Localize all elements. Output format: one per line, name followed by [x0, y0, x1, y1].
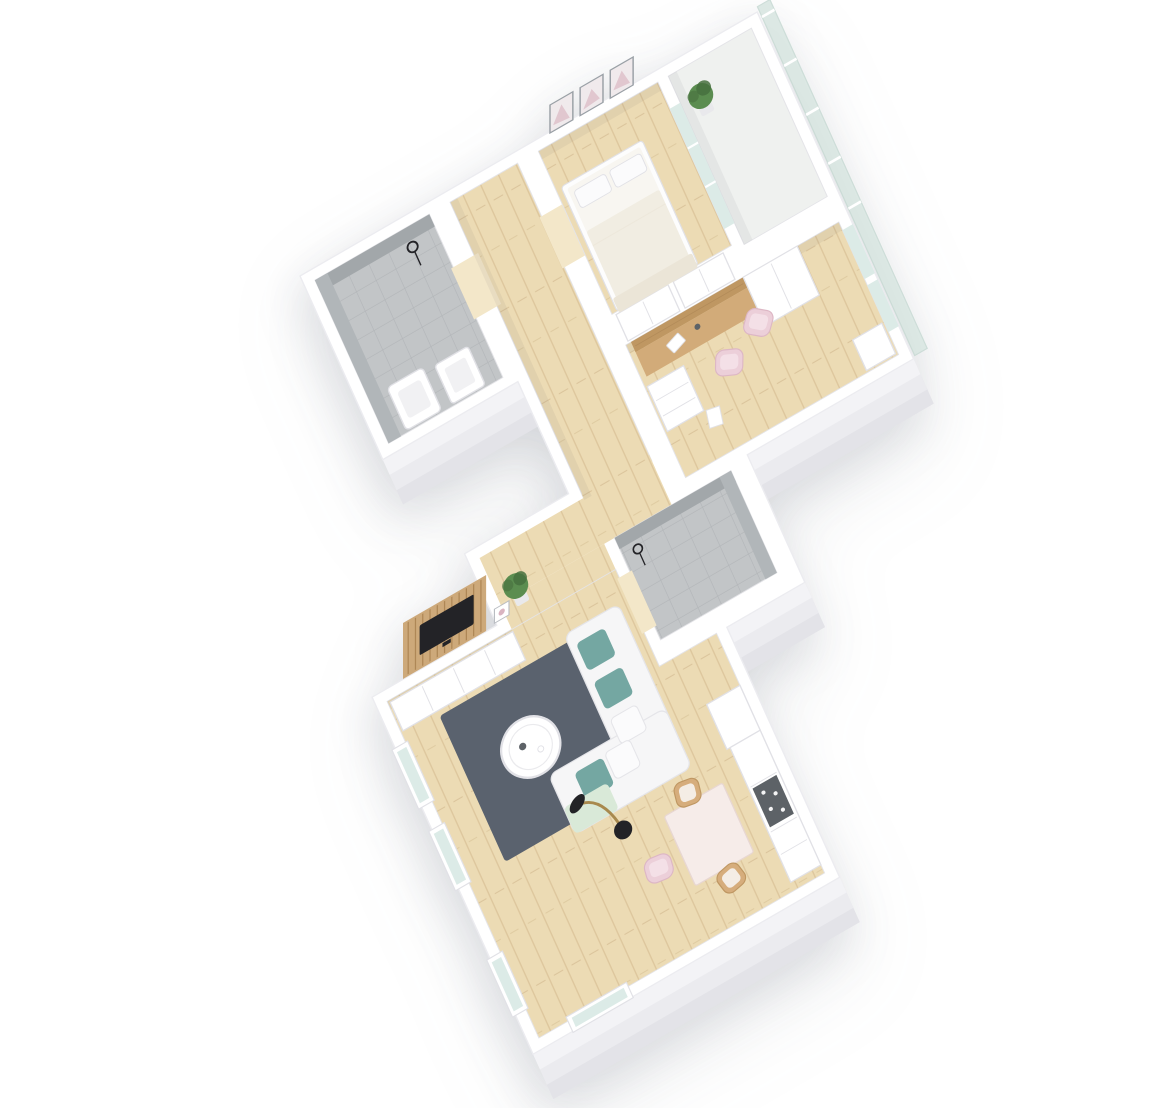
pink-office-chair: [715, 348, 743, 377]
floor-plan-stage: [0, 0, 1170, 1108]
iso-world: [202, 0, 1119, 1101]
chair-cushion: [720, 353, 738, 370]
apartment-floor-plan: [0, 0, 1170, 1108]
